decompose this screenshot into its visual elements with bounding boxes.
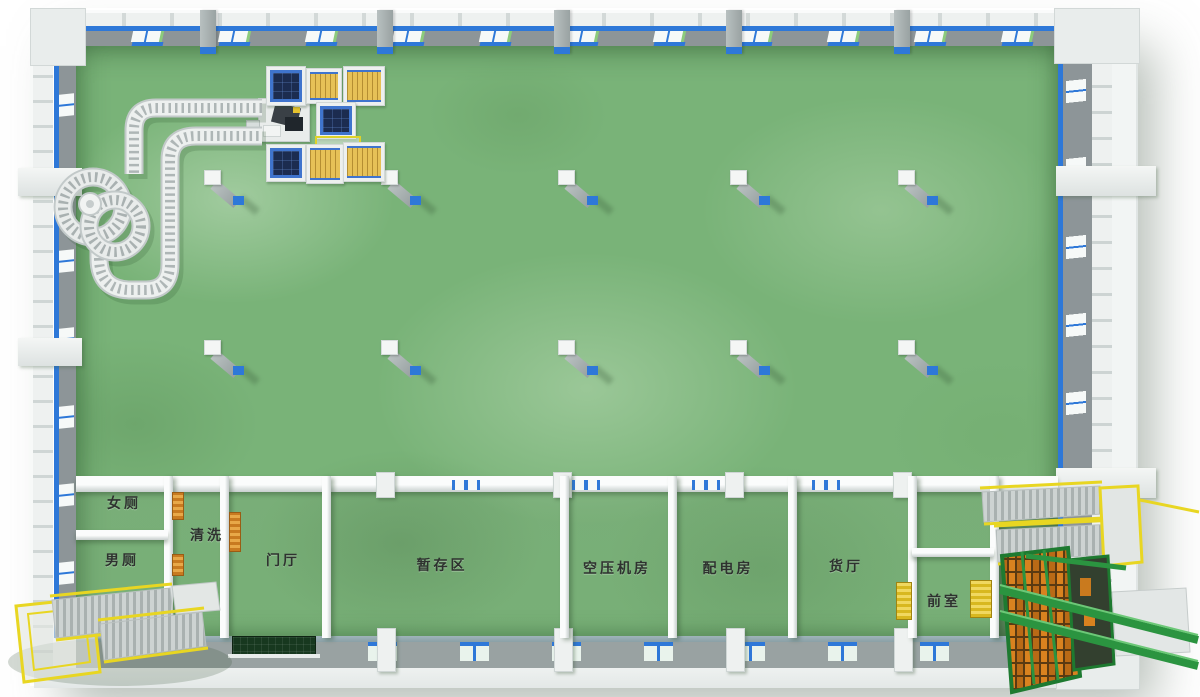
room-label-air-compressor-room: 空压机房: [583, 558, 651, 578]
room-label-men-toilet: 男厕: [105, 550, 139, 570]
room-label-front-room: 前室: [927, 591, 961, 611]
roller-conveyor: [63, 108, 266, 295]
green-rack-lift: [1000, 548, 1198, 692]
room-label-staging-area: 暂存区: [417, 555, 468, 575]
factory-floorplan-render: 女厕 男厕 清洗 门厅 暂存区 空压机房 配电房 货厅 前室: [0, 0, 1200, 697]
room-label-washing: 清洗: [190, 525, 224, 545]
room-label-women-toilet: 女厕: [107, 493, 141, 513]
room-label-entrance-hall: 门厅: [266, 550, 300, 570]
room-label-cargo-hall: 货厅: [829, 556, 863, 576]
staircase-southwest: [8, 582, 232, 686]
room-label-power-distribution-room: 配电房: [703, 558, 754, 578]
equipment-overlay: [0, 0, 1200, 697]
